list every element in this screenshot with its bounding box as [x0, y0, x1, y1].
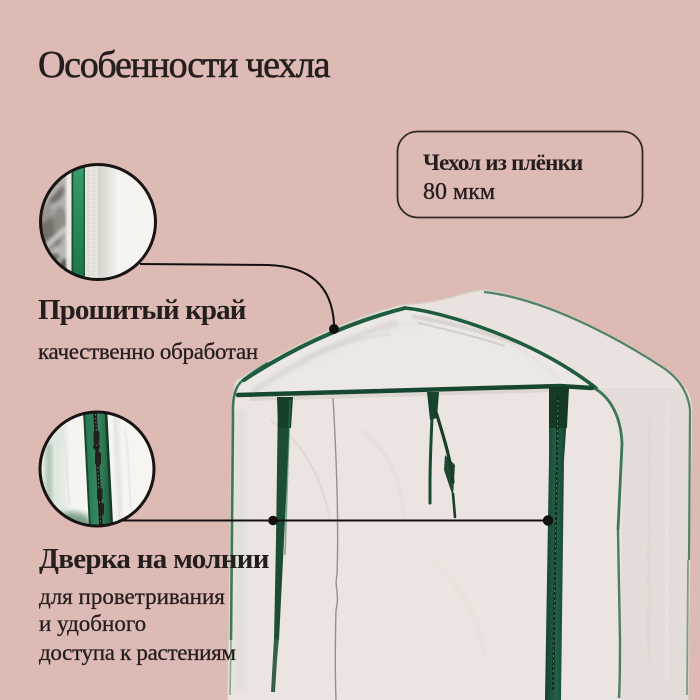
- svg-text:Особенности чехла: Особенности чехла: [38, 44, 331, 86]
- svg-text:Дверка на молнии: Дверка на молнии: [39, 543, 269, 575]
- svg-text:Прошитый край: Прошитый край: [38, 294, 246, 326]
- svg-text:Чехол из плёнки: Чехол из плёнки: [423, 150, 583, 175]
- svg-text:80 мкм: 80 мкм: [423, 179, 495, 205]
- svg-text:качественно обработан: качественно обработан: [38, 339, 258, 364]
- svg-text:для проветривания: для проветривания: [39, 584, 225, 609]
- svg-text:и удобного: и удобного: [39, 611, 146, 636]
- svg-text:доступа к растениям: доступа к растениям: [39, 640, 236, 665]
